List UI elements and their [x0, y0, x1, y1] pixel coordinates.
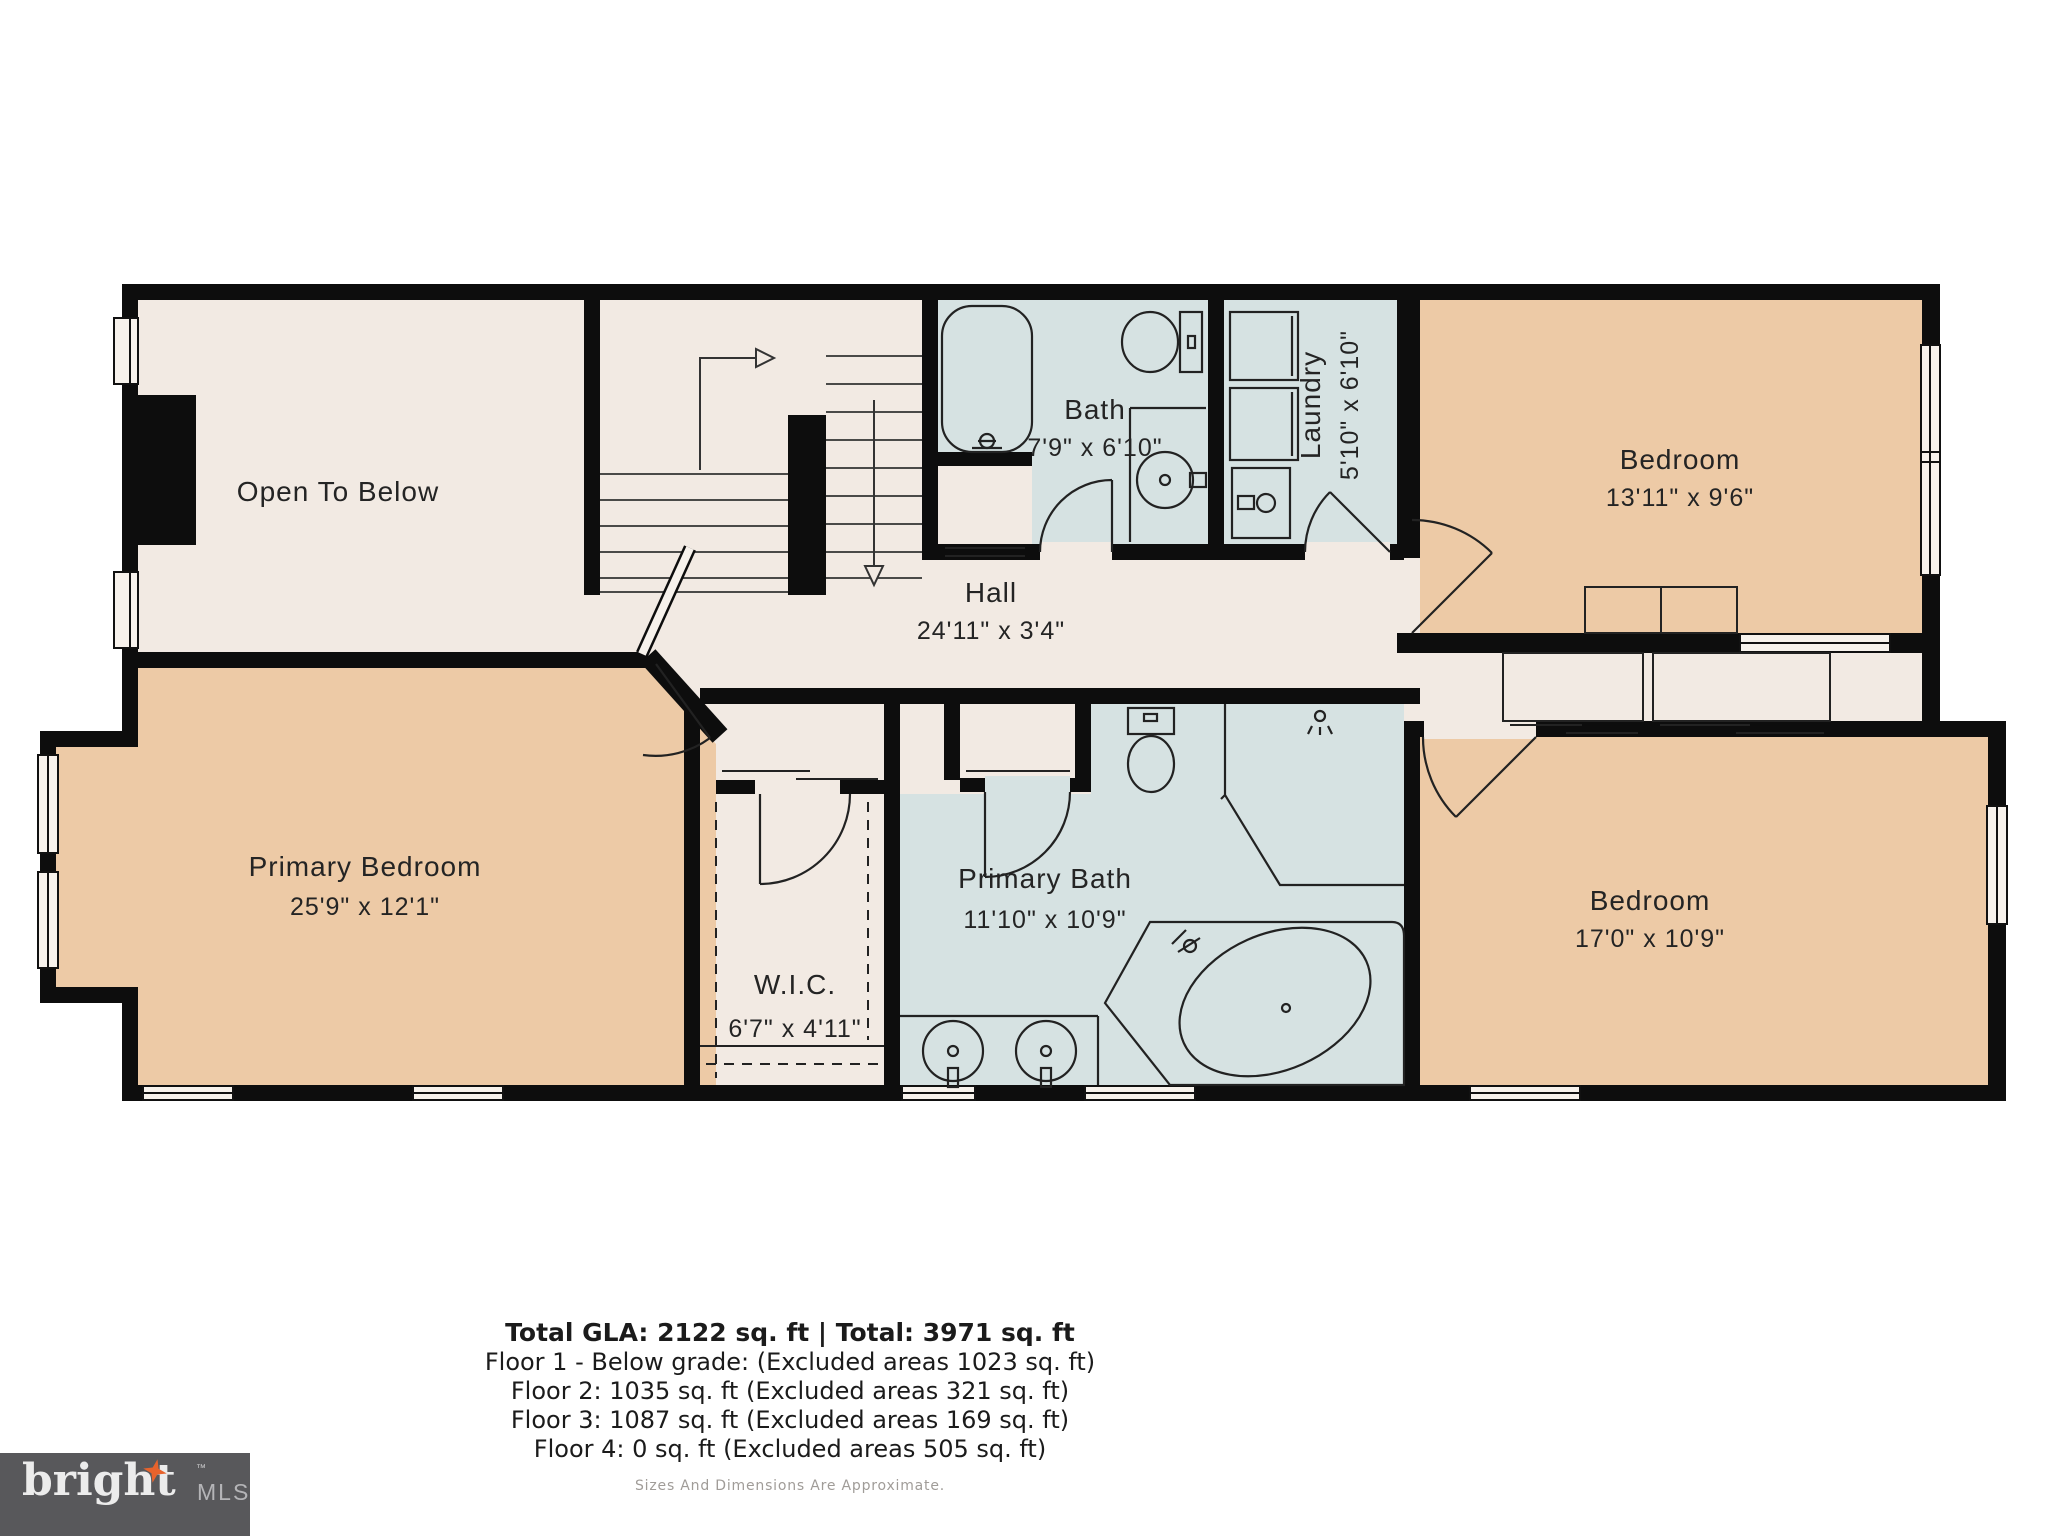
bath-dims: 7'9" x 6'10" [1027, 434, 1162, 462]
area-summary: Total GLA: 2122 sq. ft | Total: 3971 sq.… [190, 1318, 1390, 1464]
bedroom-top-label: Bedroom [1620, 444, 1741, 475]
primary-bath-dims: 11'10" x 10'9" [963, 906, 1126, 934]
bedroom-top-dims: 13'11" x 9'6" [1606, 484, 1754, 512]
window [38, 872, 58, 968]
window [114, 318, 138, 384]
wic-label: W.I.C. [754, 969, 836, 1000]
floor1-line: Floor 1 - Below grade: (Excluded areas 1… [190, 1348, 1390, 1377]
window [1921, 345, 1940, 575]
floor-plan-page: Open To Below Bath 7'9" x 6'10" Laundry … [0, 0, 2048, 1536]
window [1740, 634, 1890, 652]
closet-box [1503, 653, 1643, 721]
bath-label: Bath [1064, 394, 1126, 425]
primary-bedroom-dims: 25'9" x 12'1" [290, 893, 440, 921]
linen-closet-floor [938, 466, 1032, 544]
logo-mls-text: MLS [197, 1479, 250, 1506]
total-gla-line: Total GLA: 2122 sq. ft | Total: 3971 sq.… [190, 1318, 1390, 1348]
hall-label: Hall [965, 577, 1017, 608]
logo-trademark: ™ [196, 1463, 206, 1474]
window [143, 1086, 233, 1100]
closet-box [1653, 653, 1830, 721]
window [1085, 1086, 1195, 1100]
bedroom-bottom-label: Bedroom [1590, 885, 1711, 916]
open-to-below-label: Open To Below [237, 476, 439, 507]
window [114, 572, 138, 648]
primary-bedroom-label: Primary Bedroom [249, 851, 482, 882]
window [902, 1086, 975, 1100]
window [38, 755, 58, 853]
wic-dims: 6'7" x 4'11" [728, 1015, 861, 1043]
logo-star-icon [143, 1459, 167, 1483]
floor-plan-drawing: Open To Below Bath 7'9" x 6'10" Laundry … [0, 0, 2048, 1536]
floor2-line: Floor 2: 1035 sq. ft (Excluded areas 321… [190, 1377, 1390, 1406]
disclaimer-text: Sizes And Dimensions Are Approximate. [635, 1478, 945, 1494]
window [413, 1086, 503, 1100]
floor3-line: Floor 3: 1087 sq. ft (Excluded areas 169… [190, 1406, 1390, 1435]
window [1470, 1086, 1580, 1100]
bedroom-bottom-dims: 17'0" x 10'9" [1575, 925, 1725, 953]
laundry-dims: 5'10" x 6'10" [1336, 330, 1364, 480]
laundry-label: Laundry [1295, 351, 1326, 459]
stair-divider [788, 415, 826, 595]
floor4-line: Floor 4: 0 sq. ft (Excluded areas 505 sq… [190, 1435, 1390, 1464]
primary-bath-label: Primary Bath [958, 863, 1132, 894]
bright-mls-logo: bright ™ MLS [0, 1453, 250, 1536]
window [1987, 806, 2007, 924]
hall-dims: 24'11" x 3'4" [917, 617, 1065, 645]
